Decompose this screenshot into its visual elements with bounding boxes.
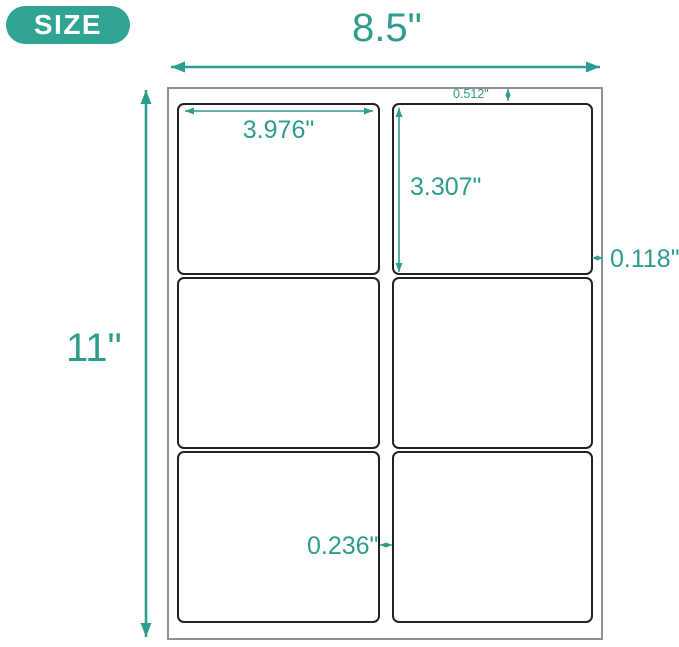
sheet-width-dimension: 8.5": [352, 6, 422, 50]
label-height-dimension: 3.307": [410, 173, 481, 201]
sheet-height-dimension: 11": [66, 326, 122, 370]
label-cell-r3c2: [392, 451, 593, 623]
label-sheet: [167, 87, 603, 640]
label-cell-r2c2: [392, 277, 593, 449]
label-sheet-size-diagram: SIZE 8.5" 11" 3.976" 3.307" 0.: [0, 0, 679, 647]
label-cell-r2c1: [177, 277, 380, 449]
column-gap-dimension: 0.236": [307, 532, 378, 560]
top-margin-dimension: 0.512": [453, 87, 489, 101]
side-margin-dimension: 0.118": [610, 245, 679, 273]
label-width-dimension: 3.976": [177, 116, 380, 144]
size-badge: SIZE: [6, 6, 130, 44]
